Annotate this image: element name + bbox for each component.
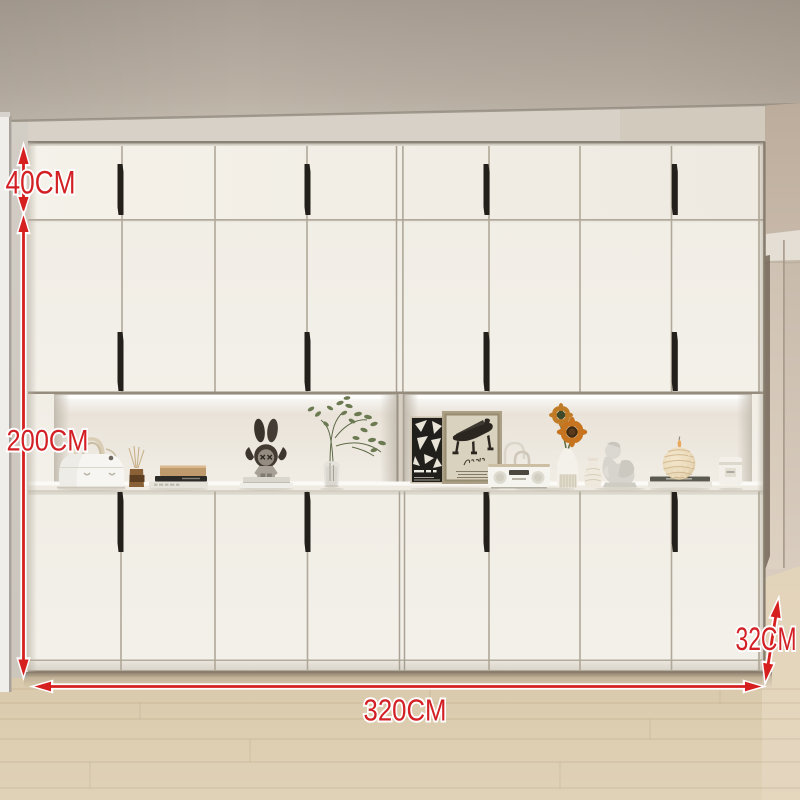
svg-text:32CM: 32CM bbox=[736, 621, 797, 657]
svg-text:320CM: 320CM bbox=[364, 693, 447, 728]
svg-text:40CM: 40CM bbox=[6, 165, 76, 201]
svg-text:200CM: 200CM bbox=[7, 425, 89, 458]
